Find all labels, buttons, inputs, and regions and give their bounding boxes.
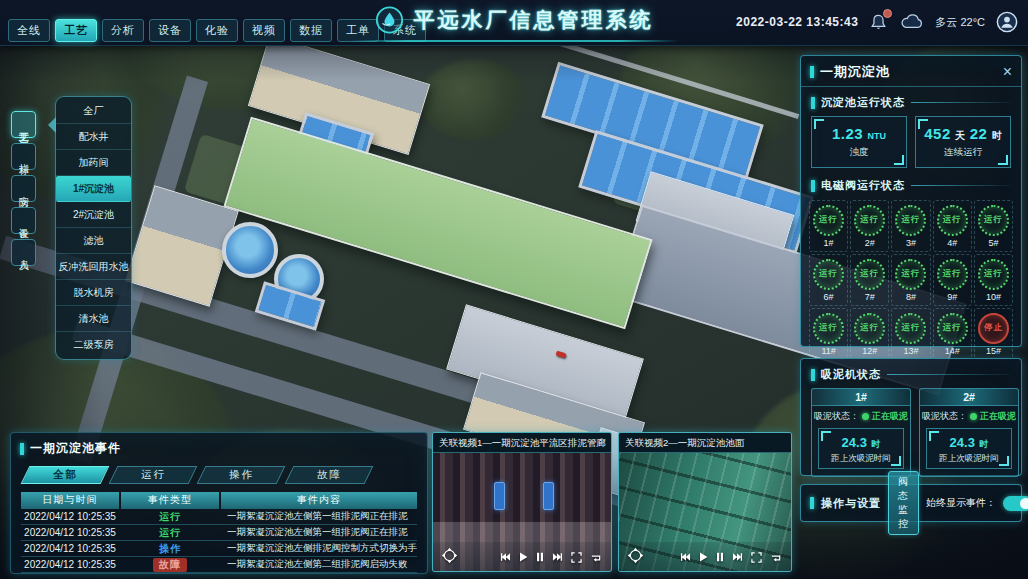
show-events-toggle[interactable] <box>1003 496 1028 511</box>
event-time: 2022/04/12 10:25:35 <box>21 543 119 554</box>
events-tab-all[interactable]: 全部 <box>21 466 110 484</box>
event-content: 一期絮凝沉淀池左侧第二组排泥阀启动失败 <box>221 558 417 571</box>
fullscreen-icon[interactable] <box>751 552 762 563</box>
valve-cell[interactable]: 运行11# <box>809 308 848 360</box>
submenu-item-fanchongxi[interactable]: 反冲洗回用水池 <box>56 254 131 280</box>
uptime-hours: 22 <box>970 125 988 142</box>
valve-id: 5# <box>988 238 998 248</box>
ptz-dpad-icon[interactable] <box>441 547 458 568</box>
datetime: 2022-03-22 13:45:43 <box>736 15 858 29</box>
video-2-stream[interactable] <box>619 453 791 572</box>
side-tab-anfang[interactable]: 安防 <box>11 175 36 202</box>
event-type: 运行 <box>121 526 219 540</box>
mud-machine-panel: 吸泥机状态 1# 吸泥状态： 正在吸泥 24.3 时 距上次吸泥时间 2# <box>800 358 1022 476</box>
event-content: 一期絮凝沉淀池左侧排泥阀控制方式切换为手动 <box>221 542 417 555</box>
submenu-item-2-chendianchi[interactable]: 2#沉淀池 <box>56 202 131 228</box>
mud-machine-id: 2# <box>920 389 1018 406</box>
mud-status-value: 正在吸泥 <box>872 410 908 423</box>
events-tabs: 全部 运行 操作 故障 <box>25 466 427 484</box>
accent-bar <box>810 497 814 509</box>
valve-cell[interactable]: 运行5# <box>974 200 1013 252</box>
cloud-weather-icon <box>899 13 924 31</box>
mud-time-note: 距上次吸泥时间 <box>939 453 999 465</box>
section-rule <box>911 185 1011 186</box>
valve-status-ring: 运行 <box>854 205 885 236</box>
accent-bar <box>811 369 815 381</box>
ptz-dpad-icon[interactable] <box>627 547 644 568</box>
accent-bar <box>20 443 24 455</box>
event-time: 2022/04/12 10:25:35 <box>21 559 119 570</box>
valve-status-ring: 运行 <box>854 313 885 344</box>
valve-cell[interactable]: 运行6# <box>809 254 848 306</box>
valve-status-ring: 运行 <box>813 313 844 344</box>
col-header-type: 事件类型 <box>121 492 219 509</box>
side-tab-renyuan[interactable]: 人员 <box>11 239 36 266</box>
skip-back-icon[interactable] <box>680 552 691 562</box>
mud-machine-card-1: 1# 吸泥状态： 正在吸泥 24.3 时 距上次吸泥时间 <box>811 388 911 477</box>
valve-id: 13# <box>903 346 918 356</box>
submenu-item-qingshuichi[interactable]: 清水池 <box>56 306 131 332</box>
event-type: 运行 <box>121 510 219 524</box>
status-dot-green <box>862 413 869 420</box>
nav-tab-gongdan[interactable]: 工单 <box>337 19 379 42</box>
events-tab-run[interactable]: 运行 <box>109 466 198 484</box>
panel-header: 一期沉淀池 × <box>801 56 1021 87</box>
nav-tab-shebei[interactable]: 设备 <box>149 19 191 42</box>
turbidity-stat: 1.23 NTU 浊度 <box>811 116 907 168</box>
valve-id: 1# <box>824 238 834 248</box>
section-title-mud: 吸泥机状态 <box>821 367 881 382</box>
col-header-datetime: 日期与时间 <box>21 492 119 509</box>
sedimentation-panel: 一期沉淀池 × 沉淀池运行状态 1.23 NTU 浊度 452 天 22 时 连… <box>800 55 1022 347</box>
valve-id: 6# <box>824 292 834 302</box>
valve-grid: 运行1# 运行2# 运行3# 运行4# 运行5# 运行6# 运行7# 运行8# … <box>801 197 1021 366</box>
accent-bar <box>810 66 814 78</box>
events-panel: 一期沉淀池事件 全部 运行 操作 故障 日期与时间 事件类型 事件内容 2022… <box>10 432 428 574</box>
events-title: 一期沉淀池事件 <box>30 440 121 457</box>
valve-status-ring: 运行 <box>978 205 1009 236</box>
video-panel-2: 关联视频2—一期沉淀池池面 <box>618 432 792 572</box>
video-2-controls <box>619 542 791 572</box>
event-type: 故障 <box>121 558 219 572</box>
notification-badge <box>883 9 892 18</box>
valve-cell[interactable]: 运行10# <box>974 254 1013 306</box>
nav-tab-huayan[interactable]: 化验 <box>196 19 238 42</box>
valve-id: 15# <box>986 346 1001 356</box>
accent-bar <box>811 180 815 192</box>
submenu-item-peishuijing[interactable]: 配水井 <box>56 124 131 150</box>
skip-back-icon[interactable] <box>500 552 511 562</box>
valve-id: 12# <box>862 346 877 356</box>
valve-cell[interactable]: 运行2# <box>850 200 889 252</box>
valve-status-ring: 运行 <box>895 313 926 344</box>
valve-status-ring: 停止 <box>978 313 1009 344</box>
notification-bell-icon[interactable] <box>869 13 888 32</box>
valve-status-ring: 运行 <box>937 205 968 236</box>
nav-tab-fenxi[interactable]: 分析 <box>102 19 144 42</box>
valve-status-ring: 运行 <box>895 259 926 290</box>
event-row[interactable]: 2022/04/12 10:25:35 运行 一期絮凝沉淀池左侧第一组排泥阀正在… <box>21 509 417 525</box>
operations-panel: 操作与设置 阀态监控 始终显示事件： <box>800 484 1022 522</box>
mud-machine-card-2: 2# 吸泥状态： 正在吸泥 24.3 时 距上次吸泥时间 <box>919 388 1019 477</box>
valve-cell[interactable]: 运行8# <box>891 254 930 306</box>
pause-icon[interactable] <box>536 552 544 562</box>
valve-id: 11# <box>821 346 835 356</box>
section-title-run-status: 沉淀池运行状态 <box>821 95 905 110</box>
turbidity-label: 浊度 <box>850 146 869 159</box>
toggle-knob <box>1020 498 1028 509</box>
valve-status-ring: 运行 <box>854 259 885 290</box>
uptime-days: 452 <box>924 125 951 142</box>
uptime-days-unit: 天 <box>955 130 965 141</box>
nav-tab-shuju[interactable]: 数据 <box>290 19 332 42</box>
play-icon[interactable] <box>519 552 528 562</box>
events-tab-operate[interactable]: 操作 <box>197 466 286 484</box>
top-info: 2022-03-22 13:45:43 多云 22°C <box>736 11 1018 33</box>
valve-status-ring: 运行 <box>813 259 844 290</box>
valve-cell[interactable]: 运行14# <box>933 308 972 360</box>
event-time: 2022/04/12 10:25:35 <box>21 511 119 522</box>
event-row[interactable]: 2022/04/12 10:25:35 操作 一期絮凝沉淀池左侧排泥阀控制方式切… <box>21 541 417 557</box>
valve-id: 10# <box>986 292 1001 302</box>
section-rule <box>911 102 1011 103</box>
valve-monitor-button[interactable]: 阀态监控 <box>888 471 919 535</box>
valve-cell[interactable]: 运行7# <box>850 254 889 306</box>
uptime-hours-unit: 时 <box>992 130 1002 141</box>
event-content: 一期絮凝沉淀池左侧第一组排泥阀正在排泥 <box>221 510 417 523</box>
col-header-content: 事件内容 <box>221 492 417 509</box>
mud-status-label: 吸泥状态： <box>814 410 859 423</box>
submenu-item-lvchi[interactable]: 滤池 <box>56 228 131 254</box>
process-submenu: 全厂 配水井 加药间 1#沉淀池 2#沉淀池 滤池 反冲洗回用水池 脱水机房 清… <box>55 96 132 360</box>
user-avatar[interactable] <box>996 11 1018 33</box>
left-tab-rail: 工艺 指标 安防 设备 人员 <box>11 111 36 266</box>
mud-time-value: 24.3 <box>842 435 867 450</box>
turbidity-value: 1.23 <box>832 125 863 142</box>
video-1-controls <box>433 542 611 572</box>
mud-time-box: 24.3 时 距上次吸泥时间 <box>926 428 1012 469</box>
side-tab-zhibiao[interactable]: 指标 <box>11 143 36 170</box>
section-title-valves: 电磁阀运行状态 <box>821 178 905 193</box>
valve-cell[interactable]: 运行4# <box>933 200 972 252</box>
valve-id: 4# <box>947 238 957 248</box>
video-1-title: 关联视频1—一期沉淀池平流区排泥管廊 <box>433 433 611 453</box>
skip-forward-icon[interactable] <box>732 552 743 562</box>
close-icon[interactable]: × <box>1003 65 1012 79</box>
fullscreen-icon[interactable] <box>571 552 582 563</box>
accent-bar <box>811 97 815 109</box>
title-underline <box>349 40 679 42</box>
events-table-header: 日期与时间 事件类型 事件内容 <box>21 492 417 509</box>
valve-id: 3# <box>906 238 916 248</box>
submenu-item-erjibengfang[interactable]: 二级泵房 <box>56 332 131 358</box>
uptime-stat: 452 天 22 时 连续运行 <box>915 116 1011 168</box>
events-tab-fault[interactable]: 故障 <box>285 466 374 484</box>
mud-status-label: 吸泥状态： <box>922 410 967 423</box>
brand: 平远水厂信息管理系统 <box>375 5 654 35</box>
tree-cluster <box>420 60 530 140</box>
top-bar: 全线 工艺 分析 设备 化验 视频 数据 工单 系统 平远水厂信息管理系统 20… <box>0 0 1028 46</box>
page-title: 平远水厂信息管理系统 <box>414 6 654 34</box>
nav-tab-gongyi[interactable]: 工艺 <box>55 19 97 42</box>
uptime-label: 连续运行 <box>944 146 982 159</box>
panel-title: 一期沉淀池 <box>820 63 890 81</box>
submenu-item-tuoshuijifang[interactable]: 脱水机房 <box>56 280 131 306</box>
side-tab-shebei[interactable]: 设备 <box>11 207 36 234</box>
side-tab-gongyi[interactable]: 工艺 <box>11 111 36 138</box>
show-events-label: 始终显示事件： <box>926 496 996 510</box>
valve-id: 9# <box>947 292 957 302</box>
section-title-ops: 操作与设置 <box>821 496 881 511</box>
valve-cell[interactable]: 运行12# <box>850 308 889 360</box>
mud-time-unit: 时 <box>979 439 988 449</box>
valve-status-ring: 运行 <box>978 259 1009 290</box>
play-icon[interactable] <box>699 552 708 562</box>
valve-cell[interactable]: 停止15# <box>974 308 1013 360</box>
mud-machine-id: 1# <box>812 389 910 406</box>
valve-cell[interactable]: 运行3# <box>891 200 930 252</box>
mud-status-value: 正在吸泥 <box>980 410 1016 423</box>
valve-status-ring: 运行 <box>895 205 926 236</box>
valve-id: 14# <box>945 346 960 356</box>
valve-status-ring: 运行 <box>813 205 844 236</box>
valve-status-ring: 运行 <box>937 259 968 290</box>
mud-time-unit: 时 <box>871 439 880 449</box>
status-dot-green <box>970 413 977 420</box>
logo-icon <box>375 5 405 35</box>
loop-icon[interactable] <box>590 552 602 563</box>
loop-icon[interactable] <box>770 552 782 563</box>
app-screen: 全线 工艺 分析 设备 化验 视频 数据 工单 系统 平远水厂信息管理系统 20… <box>0 0 1028 579</box>
turbidity-unit: NTU <box>868 131 887 141</box>
video-1-stream[interactable] <box>433 453 611 572</box>
event-content: 一期絮凝沉淀池左侧第一组排泥阀正在排泥 <box>221 526 417 539</box>
event-row[interactable]: 2022/04/12 10:25:35 运行 一期絮凝沉淀池左侧第一组排泥阀正在… <box>21 525 417 541</box>
event-type: 操作 <box>121 542 219 556</box>
valve-cell[interactable]: 运行1# <box>809 200 848 252</box>
valve-status-ring: 运行 <box>937 313 968 344</box>
video-2-title: 关联视频2—一期沉淀池池面 <box>619 433 791 453</box>
main-nav: 全线 工艺 分析 设备 化验 视频 数据 工单 系统 <box>8 19 426 42</box>
weather-text: 多云 22°C <box>935 15 985 30</box>
skip-forward-icon[interactable] <box>552 552 563 562</box>
nav-tab-shipin[interactable]: 视频 <box>243 19 285 42</box>
mud-time-value: 24.3 <box>950 435 975 450</box>
section-rule <box>887 374 1011 375</box>
valve-id: 8# <box>906 292 916 302</box>
nav-tab-quanxian[interactable]: 全线 <box>8 19 50 42</box>
submenu-item-1-chendianchi[interactable]: 1#沉淀池 <box>56 176 131 202</box>
valve-id: 7# <box>865 292 875 302</box>
valve-id: 2# <box>865 238 875 248</box>
video-panel-1: 关联视频1—一期沉淀池平流区排泥管廊 <box>432 432 612 572</box>
submenu-item-jiayaojian[interactable]: 加药间 <box>56 150 131 176</box>
clarifier-pool <box>222 222 278 278</box>
pause-icon[interactable] <box>716 552 724 562</box>
valve-cell[interactable]: 运行9# <box>933 254 972 306</box>
event-row[interactable]: 2022/04/12 10:25:35 故障 一期絮凝沉淀池左侧第二组排泥阀启动… <box>21 557 417 573</box>
mud-time-note: 距上次吸泥时间 <box>831 453 891 465</box>
submenu-item-quanchang[interactable]: 全厂 <box>56 98 131 124</box>
valve-cell[interactable]: 运行13# <box>891 308 930 360</box>
mud-time-box: 24.3 时 距上次吸泥时间 <box>818 428 904 469</box>
event-time: 2022/04/12 10:25:35 <box>21 527 119 538</box>
